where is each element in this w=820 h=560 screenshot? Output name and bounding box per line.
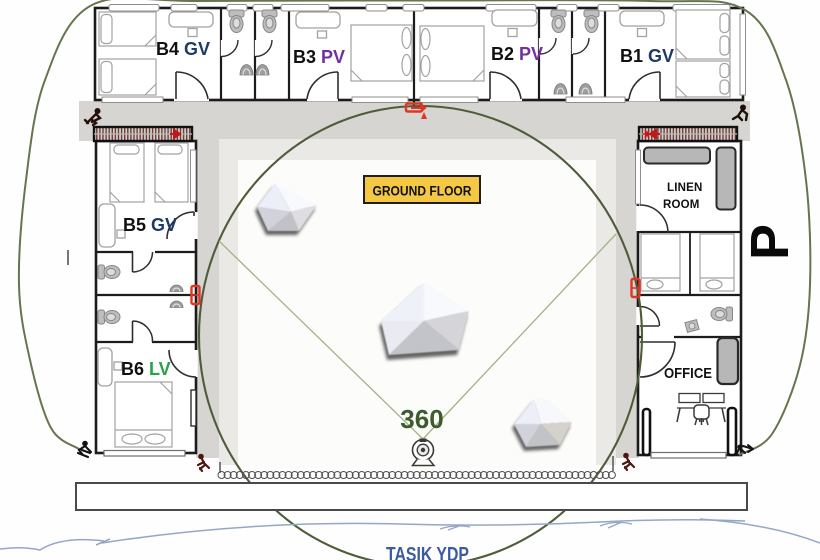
svg-text:OFFICE: OFFICE [664, 365, 712, 382]
svg-text:ROOM: ROOM [663, 199, 700, 211]
svg-text:B2 PV: B2 PV [491, 44, 543, 64]
svg-text:GROUND FLOOR: GROUND FLOOR [373, 184, 472, 199]
svg-text:B5 GV: B5 GV [123, 215, 177, 235]
svg-text:LINEN: LINEN [667, 182, 703, 194]
svg-text:B1 GV: B1 GV [620, 46, 674, 66]
svg-text:B3 PV: B3 PV [293, 47, 345, 67]
svg-text:TASIK YDP: TASIK YDP [386, 544, 469, 560]
svg-text:360: 360 [400, 404, 443, 434]
svg-text:P: P [740, 224, 800, 260]
svg-text:B6 LV: B6 LV [121, 359, 171, 379]
svg-text:B4 GV: B4 GV [156, 39, 210, 59]
